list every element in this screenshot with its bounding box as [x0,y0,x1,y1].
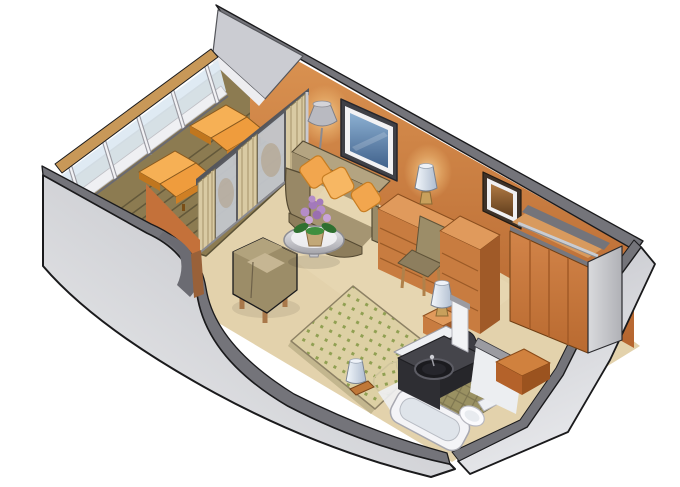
armchair [232,238,300,323]
lamp-shade [431,281,453,309]
closet-side-panel [588,246,622,353]
faucet [430,355,434,359]
lamp-base [420,192,432,204]
floor-lamp-shade-top [313,101,331,107]
illustration-canvas [0,0,680,487]
chest-side [480,235,500,334]
lamp-shade [415,164,437,192]
lamp-shade [346,359,366,384]
stateroom-floorplan-illustration [0,0,680,487]
glass-reflection [218,178,234,208]
glass-reflection [261,143,281,177]
